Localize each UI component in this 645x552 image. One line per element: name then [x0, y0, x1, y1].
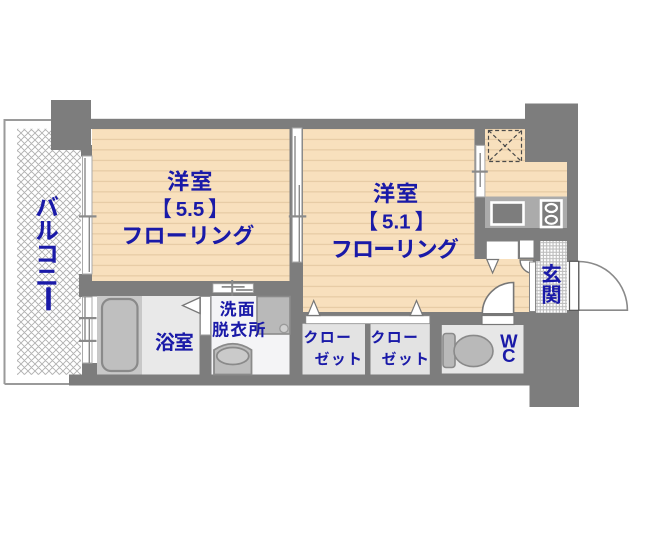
svg-text:5.1: 5.1 — [382, 211, 411, 234]
svg-text:5.5: 5.5 — [176, 198, 205, 221]
svg-text:C: C — [502, 345, 515, 366]
